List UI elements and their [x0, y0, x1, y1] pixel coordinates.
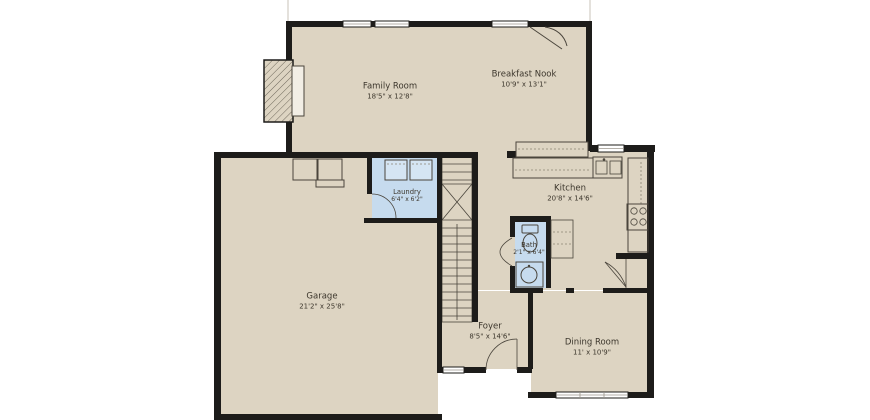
- window-icon: [556, 392, 628, 398]
- window-icon: [375, 21, 409, 27]
- window-icon: [598, 145, 624, 152]
- washer-icon: [385, 160, 407, 180]
- fireplace-icon: [264, 60, 304, 122]
- breakfast-bar-counter: [516, 142, 588, 157]
- projection-lines: [288, 0, 590, 21]
- floor-plan: Family Room 18'5" x 12'8" Breakfast Nook…: [0, 0, 870, 420]
- stairs-icon: [442, 156, 472, 322]
- window-icon: [343, 21, 371, 27]
- dryer-icon: [410, 160, 432, 180]
- window-icon: [492, 21, 528, 27]
- dining-floor: [531, 291, 648, 394]
- window-icon: [443, 367, 464, 373]
- floor-plan-canvas: [0, 0, 870, 420]
- family-breakfast-floor: [290, 25, 588, 155]
